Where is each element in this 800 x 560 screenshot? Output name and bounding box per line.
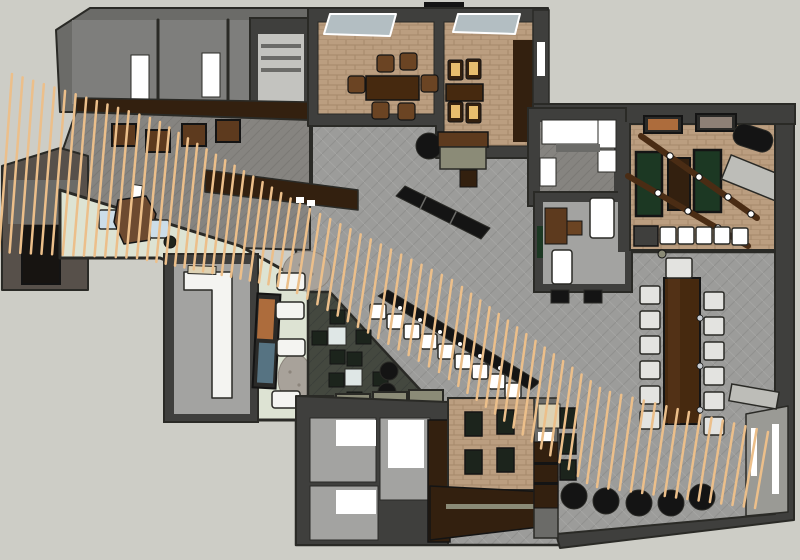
scene-root bbox=[0, 0, 800, 560]
ottoman bbox=[561, 483, 587, 509]
lounge-chair bbox=[347, 352, 362, 366]
dining-chair-white bbox=[704, 342, 724, 360]
bar-plate bbox=[458, 342, 462, 346]
nook-floor bbox=[448, 398, 536, 490]
mural-top bbox=[257, 299, 275, 340]
stool-black bbox=[584, 290, 602, 303]
table-clamp bbox=[697, 363, 703, 369]
lounge-table bbox=[328, 327, 346, 345]
booth-table bbox=[216, 120, 240, 142]
beam-light bbox=[748, 211, 754, 217]
games-bar-counter bbox=[634, 226, 658, 246]
dining-chair-white bbox=[704, 367, 724, 385]
counter bbox=[598, 150, 616, 172]
shelf bbox=[261, 68, 301, 72]
dining-table bbox=[446, 84, 483, 101]
wall-art-canvas bbox=[648, 119, 678, 130]
service-counter-top bbox=[438, 132, 488, 147]
dining-chair-white bbox=[640, 361, 660, 379]
counter-edge bbox=[556, 144, 600, 152]
dining-chair-white bbox=[704, 292, 724, 310]
skylight bbox=[324, 14, 396, 36]
lounge-chair bbox=[329, 373, 344, 387]
lounge-chair bbox=[330, 350, 345, 364]
office-sofa bbox=[590, 198, 614, 238]
door-swing bbox=[336, 490, 376, 514]
chair-cushion bbox=[451, 105, 460, 118]
counter bbox=[542, 120, 602, 144]
floorplan-render bbox=[0, 0, 800, 560]
games-west-wall bbox=[618, 122, 630, 252]
shelf bbox=[261, 56, 301, 60]
door-opening bbox=[537, 42, 545, 76]
dining-chair bbox=[398, 103, 415, 120]
floor-drain bbox=[658, 250, 666, 258]
plant bbox=[164, 236, 176, 248]
head-chair bbox=[666, 258, 692, 278]
dining-chair bbox=[377, 55, 394, 72]
door-opening bbox=[202, 53, 220, 97]
bench-white bbox=[277, 339, 305, 356]
counter bbox=[540, 158, 556, 186]
beam-light bbox=[667, 153, 673, 159]
stool-black bbox=[551, 290, 569, 303]
barstool-white bbox=[714, 227, 730, 244]
beam-light bbox=[696, 174, 702, 180]
counter bbox=[598, 120, 616, 148]
table-clamp bbox=[697, 315, 703, 321]
nook-chair bbox=[465, 450, 482, 474]
beam-light bbox=[725, 194, 731, 200]
table-clamp bbox=[697, 407, 703, 413]
mural-bottom bbox=[257, 343, 275, 384]
dining-chair bbox=[400, 53, 417, 70]
office-chair bbox=[567, 221, 582, 235]
bar-plate bbox=[438, 330, 442, 334]
dining-chair bbox=[421, 75, 438, 92]
shelf-cabinet bbox=[534, 442, 558, 508]
ottoman bbox=[626, 490, 652, 516]
shelf bbox=[534, 462, 558, 465]
office-bench bbox=[552, 250, 572, 284]
ottoman bbox=[658, 490, 684, 516]
planter bbox=[537, 226, 543, 258]
bar-plate bbox=[398, 306, 402, 310]
counter-item bbox=[307, 200, 315, 206]
lounge-chair bbox=[312, 331, 327, 345]
shelf bbox=[534, 482, 558, 485]
chair-cushion bbox=[469, 62, 478, 75]
beam-light bbox=[655, 190, 661, 196]
dining-chair-white bbox=[640, 336, 660, 354]
barstool-white bbox=[678, 227, 694, 244]
dining-chair-white bbox=[640, 311, 660, 329]
door-opening bbox=[131, 55, 149, 99]
barstool-white bbox=[696, 227, 712, 244]
nook-chair bbox=[465, 412, 482, 436]
counter-item bbox=[296, 197, 304, 203]
bar-plate bbox=[418, 318, 422, 322]
stone-speckle bbox=[297, 383, 300, 386]
stone-speckle bbox=[288, 370, 291, 373]
dining-chair-white bbox=[640, 286, 660, 304]
dining-table bbox=[366, 76, 419, 100]
side-table bbox=[460, 170, 477, 187]
office-desk bbox=[545, 208, 567, 244]
table-sheen bbox=[668, 278, 680, 424]
barstool-white bbox=[660, 227, 676, 244]
door-swing bbox=[336, 420, 376, 446]
skylight bbox=[453, 14, 520, 34]
ottoman bbox=[380, 362, 398, 380]
service-counter bbox=[440, 147, 486, 169]
barstool-white bbox=[732, 228, 748, 245]
shelf bbox=[261, 44, 301, 48]
dining-chair bbox=[348, 76, 365, 93]
barstool-white bbox=[489, 374, 505, 389]
booth-trim bbox=[446, 504, 544, 509]
lounge-table bbox=[345, 369, 362, 386]
wall-art-canvas bbox=[700, 117, 732, 128]
bench-white bbox=[276, 302, 304, 319]
panel-stripe bbox=[772, 424, 779, 494]
chair-cushion bbox=[451, 63, 460, 76]
viewport-3d-floorplan[interactable] bbox=[0, 0, 800, 560]
beam-light bbox=[685, 208, 691, 214]
ottoman bbox=[593, 488, 619, 514]
booth-table bbox=[182, 124, 206, 146]
nook-chair bbox=[497, 448, 514, 472]
dining-chair bbox=[372, 102, 389, 119]
dining-chair-white bbox=[704, 392, 724, 410]
dining-chair-white bbox=[704, 317, 724, 335]
chair-cushion bbox=[469, 106, 478, 119]
door-swing bbox=[388, 420, 424, 468]
